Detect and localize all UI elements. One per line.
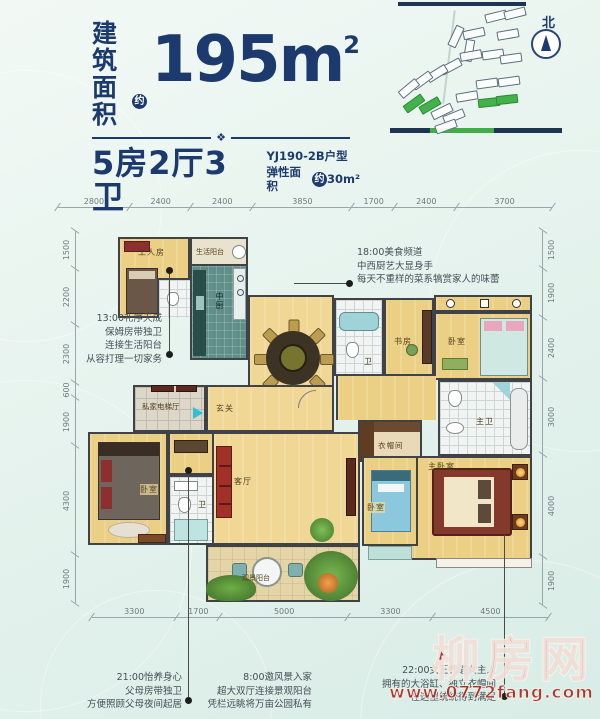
bench-icon (442, 358, 468, 370)
layout-headline: 5房2厅3卫 (92, 146, 256, 214)
dimension-segment: 2400 (542, 318, 556, 379)
plant-icon (310, 518, 334, 542)
poster: 建筑 面积 约 195m2 ❖ 5房2厅3卫 YJ190-2B户型 弹性面积 约… (0, 0, 600, 719)
annotation-line: 超大双厅连接景观阳台 (196, 685, 312, 699)
dimension-rail-right: 150019002400300040001900 (542, 231, 556, 605)
room-label: 卫 (364, 356, 373, 367)
annotation-0800: 8:00邀风景入家 超大双厅连接景观阳台 凭栏远眺将万亩公园私有 (196, 671, 312, 712)
sink-icon (446, 422, 464, 434)
annotation-1300: 13:00礼序天成 保姆房带独卫 连接生活阳台 从容打理一切家务 (30, 312, 162, 366)
room-label: 卧室 (367, 502, 385, 513)
annotation-line: 连接生活阳台 (30, 339, 162, 353)
approx-badge: 约 (132, 94, 147, 109)
north-arrow-icon (531, 29, 561, 59)
flower-pot-icon (318, 573, 338, 593)
room-label: 客厅 (234, 476, 252, 487)
room-view-balcony: 观景阳台 (206, 545, 360, 602)
watermark-url: www.0772fang.com (389, 683, 594, 703)
annotation-line: 13:00礼序天成 (30, 312, 162, 326)
bathtub-icon (510, 388, 528, 450)
plant-icon (304, 551, 358, 601)
site-building (496, 28, 519, 41)
site-road-bar (398, 2, 526, 6)
dimension-segment: 5000 (220, 604, 348, 618)
elevator-doors-icon (151, 385, 197, 392)
leader-line (294, 283, 348, 284)
dining-table-icon (266, 331, 320, 385)
wardrobe-strip (434, 295, 532, 312)
watermark-name: 柳房网 (389, 637, 594, 683)
annotation-line: 凭栏远眺将万亩公园私有 (196, 698, 312, 712)
lamp-icon (516, 468, 525, 477)
sofa-icon (216, 446, 232, 518)
toilet-icon (346, 342, 359, 358)
annotation-line: 从容打理一切家务 (30, 353, 162, 367)
desk-icon (422, 310, 432, 364)
leader-dot (185, 467, 192, 474)
flex-area-prefix: 弹性面积 (266, 165, 310, 193)
bathtub-icon (339, 312, 379, 331)
dimension-rail-left: 150022002300600190043001900 (62, 231, 76, 603)
site-building (447, 25, 464, 49)
kitchen-counter (193, 270, 206, 356)
room-label: 观景阳台 (242, 573, 270, 583)
room-service-balcony: 生活阳台 (190, 237, 248, 266)
dresser-icon (138, 534, 166, 543)
room-label: 私家电梯厅 (142, 401, 180, 412)
wardrobe-icon (360, 422, 374, 460)
shower-icon (492, 382, 510, 400)
wardrobe-icon (374, 422, 420, 432)
toilet-icon (448, 390, 462, 407)
annotation-line: 中西厨艺大显身手 (357, 260, 582, 274)
room-bedroom-middle: 卧室 (362, 456, 418, 546)
header-divider: ❖ (92, 131, 350, 144)
site-building (455, 90, 478, 103)
site-building (499, 53, 522, 65)
room-elevator-hall: 私家电梯厅 (133, 385, 206, 432)
wardrobe-icon (174, 440, 208, 453)
annotation-line: 21:00怡养身心 (50, 671, 182, 685)
hallway (336, 376, 436, 420)
flex-approx-badge: 约 (312, 172, 327, 187)
room-study: 书房 (384, 298, 434, 376)
room-worker: 工人房 (118, 237, 190, 318)
entry-arrow-icon (193, 407, 203, 419)
room-parents-bath: 卫 (168, 475, 214, 545)
fixture-icon (480, 299, 489, 308)
room-bedroom-top-right: 卧室 (434, 312, 532, 380)
leader-line (169, 272, 170, 354)
bed-icon (371, 470, 411, 532)
building-area-headline: 建筑 面积 约 195m2 (92, 14, 360, 128)
header: 建筑 面积 约 195m2 ❖ 5房2厅3卫 YJ190-2B户型 弹性面积 约… (92, 14, 360, 214)
watermark-logo: 柳房网 www.0772fang.com (389, 637, 594, 703)
annotation-1800: 18:00美食频道 中西厨艺大显身手 每天不重样的菜系犒赏家人的味蕾 (357, 246, 582, 287)
dimension-segment: 4300 (62, 446, 76, 555)
fixture-icon (446, 299, 455, 308)
divider-ornament-icon: ❖ (211, 131, 231, 144)
area-word-1: 建筑 (92, 20, 147, 74)
room-master-bedroom: 主卧室 (398, 456, 532, 560)
room-label: 工人房 (138, 247, 165, 258)
room-living: 客厅 (212, 432, 360, 545)
annotation-line: 保姆房带独卫 (30, 326, 162, 340)
site-building-highlighted (496, 94, 519, 105)
room-label: 卫 (198, 499, 207, 510)
dimension-segment: 3000 (542, 379, 556, 455)
chair-icon (288, 563, 303, 577)
bay-window (368, 546, 412, 560)
stove-icon (233, 268, 246, 320)
dimension-segment: 1900 (542, 557, 556, 605)
bed-icon (432, 468, 512, 536)
room-label: 生活阳台 (196, 247, 224, 257)
bay-window (436, 558, 532, 568)
annotation-line: 每天不重样的菜系犒赏家人的味蕾 (357, 273, 582, 287)
annotation-line: 父母房带独卫 (50, 685, 182, 699)
fixture-icon (512, 299, 521, 308)
site-building (497, 76, 520, 88)
flex-area-value: 30m² (327, 172, 360, 186)
dimension-segment: 4000 (542, 455, 556, 557)
site-building (459, 49, 482, 62)
bed-icon (98, 442, 160, 520)
dimension-segment: 1700 (177, 604, 221, 618)
bed-icon (126, 268, 158, 314)
room-bedroom-parents: 卧室 (88, 432, 168, 545)
site-map: 北 (390, 2, 595, 137)
room-label: 卧室 (448, 336, 466, 347)
room-master-bath: 主卫 (438, 380, 532, 456)
dimension-segment: 4500 (433, 604, 548, 618)
leader-dot (166, 351, 173, 358)
annotation-line: 8:00邀风景入家 (196, 671, 312, 685)
room-kitchen: 中厨 (190, 264, 248, 360)
site-road (442, 10, 455, 104)
annotation-2100: 21:00怡养身心 父母房带独卫 方便照顾父母夜间起居 (50, 671, 182, 712)
nightstand-icon (512, 464, 528, 480)
leader-dot (346, 280, 353, 287)
leader-line (188, 472, 189, 700)
bed-icon (480, 318, 528, 376)
room-label: 中厨 (214, 292, 225, 310)
dimension-segment: 3300 (92, 604, 177, 618)
dimension-rail-bottom: 33001700500033004500 (92, 604, 548, 618)
room-label: 衣帽间 (378, 440, 404, 451)
room-label: 主卫 (476, 416, 494, 427)
annotation-line: 方便照顾父母夜间起居 (50, 698, 182, 712)
area-value: 195m2 (151, 14, 360, 91)
washer-icon (232, 245, 246, 259)
square-sup: 2 (343, 31, 360, 59)
leader-dot (185, 697, 192, 704)
room-label: 卧室 (140, 484, 158, 495)
site-building (503, 6, 527, 20)
sink-icon (196, 296, 204, 310)
model-code: YJ190-2B户型 (266, 149, 360, 163)
nightstand-icon (512, 514, 528, 530)
dimension-segment: 2400 (395, 194, 457, 208)
room-guest-bath: 卫 (334, 298, 384, 376)
dimension-segment: 1900 (62, 398, 76, 446)
shower-icon (174, 519, 208, 541)
lamp-icon (516, 518, 525, 527)
area-word-2: 面积 (92, 74, 130, 128)
sink-icon (174, 481, 198, 491)
toilet-icon (178, 497, 191, 513)
room-label: 书房 (394, 336, 412, 347)
dimension-segment: 1900 (62, 555, 76, 603)
dimension-segment: 3700 (457, 194, 552, 208)
dimension-segment: 1500 (62, 231, 76, 269)
leader-dot (166, 267, 173, 274)
tv-cabinet-icon (346, 458, 356, 516)
dimension-segment: 3300 (348, 604, 433, 618)
room-label: 主卧室 (428, 461, 455, 472)
site-building (475, 78, 498, 90)
annotation-line: 18:00美食频道 (357, 246, 582, 260)
room-label: 玄关 (216, 403, 234, 414)
